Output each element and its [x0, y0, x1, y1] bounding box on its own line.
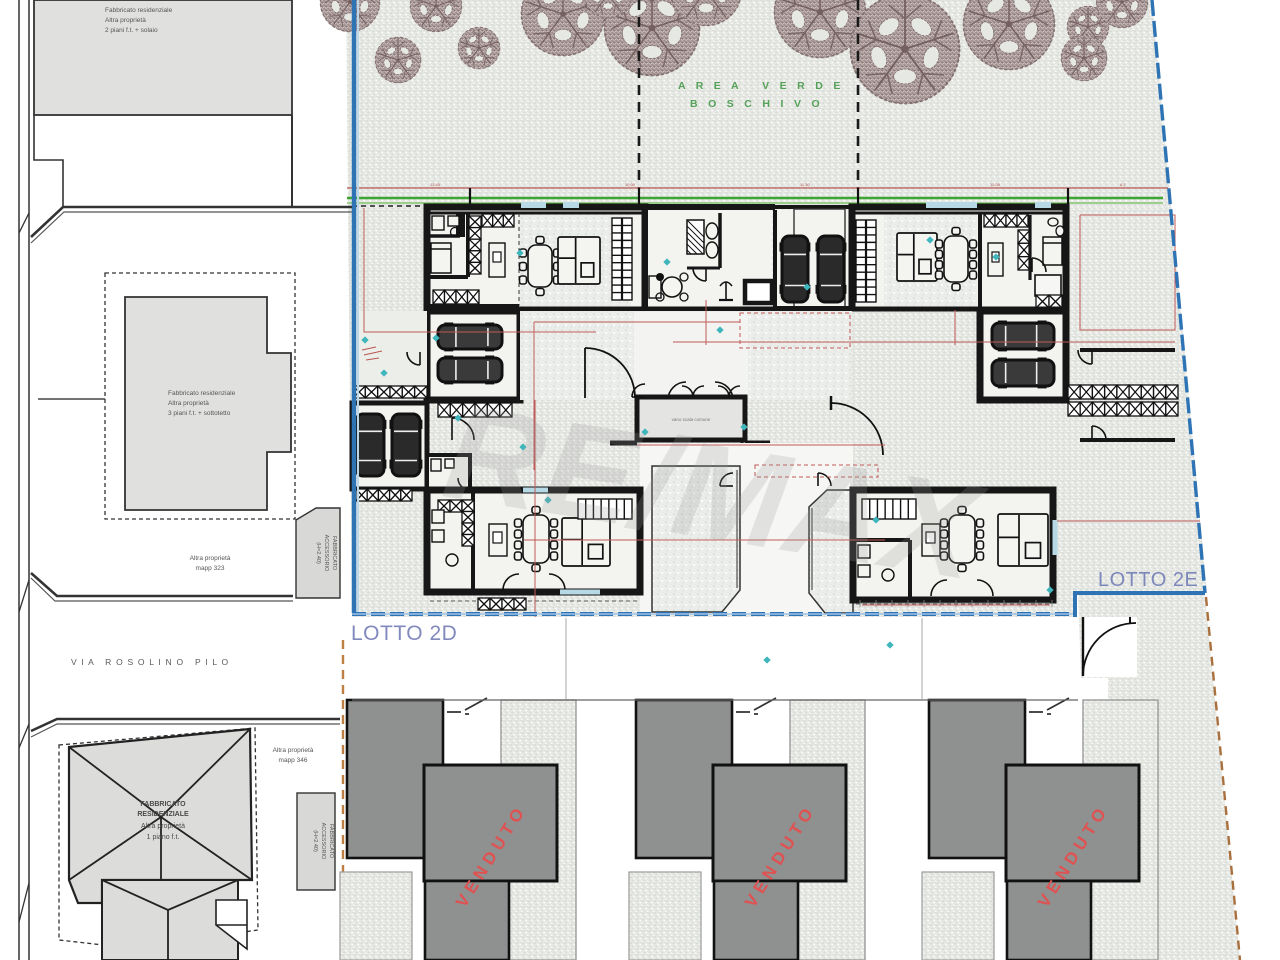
- svg-text:Altra proprietà: Altra proprietà: [141, 823, 185, 830]
- svg-text:2 piani f.t. + solaio: 2 piani f.t. + solaio: [105, 27, 158, 34]
- svg-text:1 piano f.t.: 1 piano f.t.: [147, 834, 180, 841]
- svg-text:LOTTO 2E: LOTTO 2E: [1098, 569, 1198, 591]
- svg-text:Altra proprietà: Altra proprietà: [168, 400, 209, 407]
- svg-text:mapp 346: mapp 346: [279, 757, 308, 764]
- svg-text:11.30: 11.30: [800, 182, 810, 187]
- svg-text:RESIDENZIALE: RESIDENZIALE: [137, 811, 189, 818]
- svg-text:A R E A V E R D E: A R E A V E R D E: [678, 80, 844, 92]
- svg-text:3 piani f.t. + sottotetto: 3 piani f.t. + sottotetto: [168, 410, 231, 417]
- svg-text:Fabbricato residenziale: Fabbricato residenziale: [105, 7, 173, 14]
- svg-text:Altra proprietà: Altra proprietà: [105, 17, 146, 24]
- svg-text:FABBRICATO: FABBRICATO: [140, 801, 186, 808]
- svg-text:FABBRICATO: FABBRICATO: [328, 824, 334, 859]
- svg-text:LOTTO 2D: LOTTO 2D: [351, 622, 457, 645]
- svg-text:(H=2.40): (H=2.40): [312, 830, 318, 852]
- svg-text:FABBRICATO: FABBRICATO: [331, 536, 337, 571]
- svg-text:Fabbricato residenziale: Fabbricato residenziale: [168, 390, 236, 397]
- svg-text:(H=2.40): (H=2.40): [315, 542, 321, 564]
- svg-text:Altra proprietà: Altra proprietà: [273, 747, 314, 754]
- svg-text:12.05: 12.05: [990, 182, 1001, 187]
- svg-text:ACCESSORIO: ACCESSORIO: [320, 823, 326, 860]
- svg-text:6.2: 6.2: [1120, 182, 1126, 187]
- svg-text:mapp 323: mapp 323: [196, 565, 225, 572]
- svg-text:Altra proprietà: Altra proprietà: [190, 555, 231, 562]
- svg-text:ACCESSORIO: ACCESSORIO: [323, 535, 329, 572]
- svg-text:10.00: 10.00: [625, 182, 636, 187]
- svg-text:B O S C H I V O: B O S C H I V O: [690, 98, 823, 110]
- svg-text:12.45: 12.45: [430, 182, 441, 187]
- svg-text:V I A R O S O L I N O P I: V I A R O S O L I N O P I L O: [71, 657, 229, 667]
